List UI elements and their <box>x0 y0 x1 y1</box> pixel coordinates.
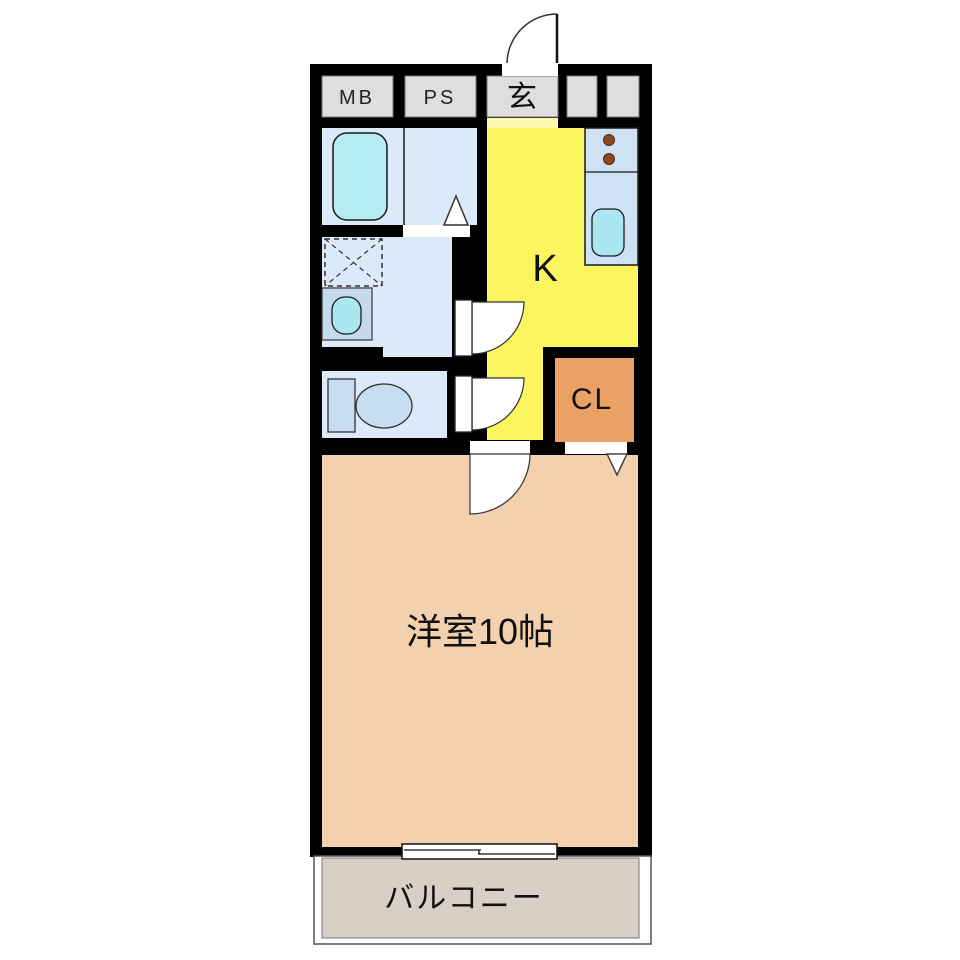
washroom-door-leaf-icon <box>455 300 472 356</box>
bathroom-doorway <box>403 225 470 237</box>
washbasin-bowl-icon <box>332 297 361 334</box>
entrance-doorway <box>502 63 558 76</box>
kitchen-label: K <box>532 248 557 290</box>
closet-label: CL <box>571 383 613 416</box>
main-room-doorway <box>470 441 530 455</box>
stove-burner-icon <box>604 154 615 165</box>
toilet-bowl-icon <box>356 384 412 428</box>
stove-burner-icon <box>604 135 615 146</box>
main-room-label: 洋室10帖 <box>406 611 554 652</box>
balcony-label: バルコニー <box>384 882 543 915</box>
pipe-space-label: PS <box>424 87 457 109</box>
meter-box-label: MB <box>339 87 375 109</box>
toilet-tank-icon <box>328 379 355 432</box>
entrance-door-arc-icon <box>507 14 557 63</box>
floor-plan: MB PS 玄 K CL 洋室10帖 バルコニー <box>0 0 960 960</box>
kitchen-sink-icon <box>592 209 624 256</box>
floor-plan-canvas: MB PS 玄 K CL 洋室10帖 バルコニー <box>0 0 960 960</box>
entrance-label: 玄 <box>507 81 537 114</box>
bathtub-icon <box>333 133 387 220</box>
utility-box-small-2 <box>607 76 639 117</box>
closet-doorway <box>565 442 627 454</box>
toilet-door-leaf-icon <box>455 376 472 432</box>
utility-box-small-1 <box>567 76 597 117</box>
